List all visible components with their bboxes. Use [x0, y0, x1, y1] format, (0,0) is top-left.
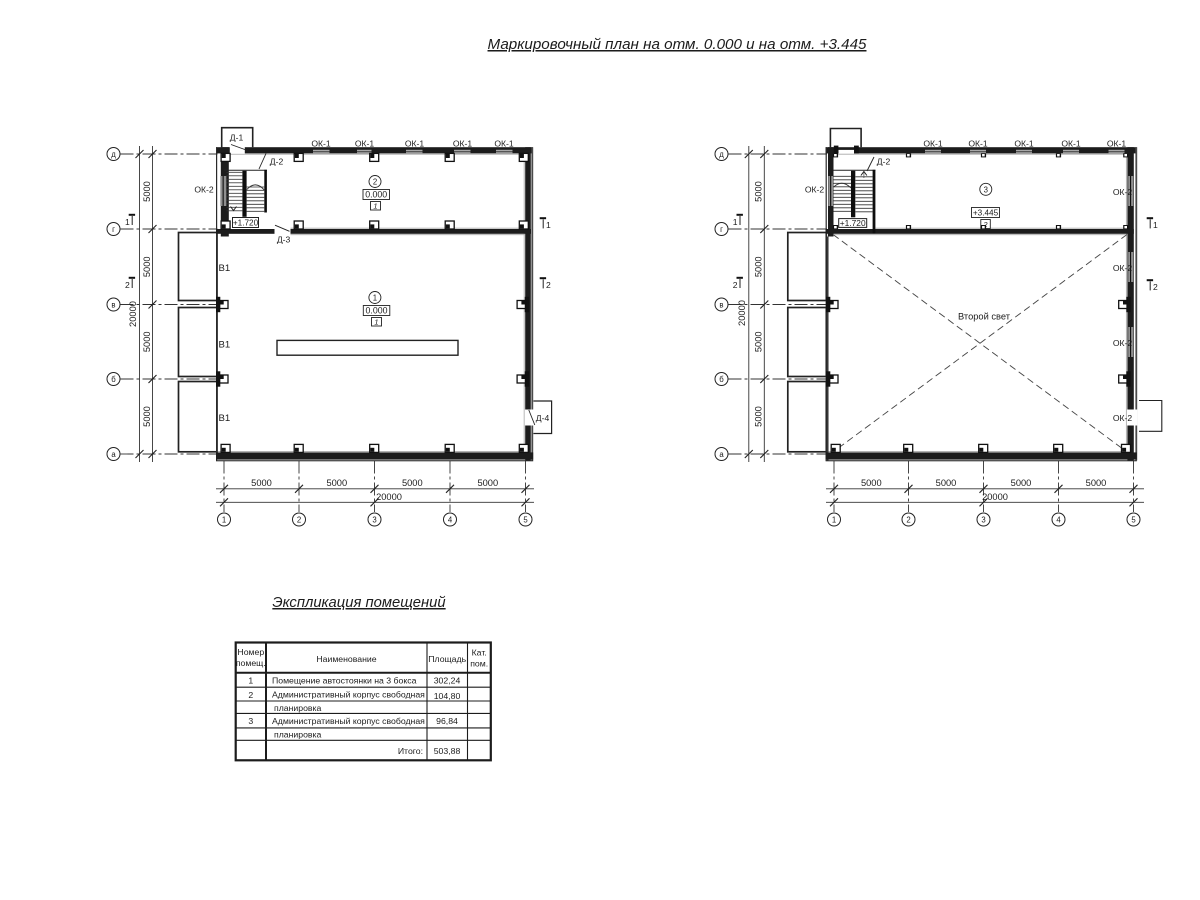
svg-text:ОК-1: ОК-1	[1107, 139, 1127, 149]
svg-text:помещ.: помещ.	[236, 658, 266, 668]
svg-text:0.000: 0.000	[365, 306, 387, 316]
svg-text:20000: 20000	[128, 301, 138, 327]
svg-text:В1: В1	[219, 340, 231, 351]
svg-text:ОК-2: ОК-2	[1113, 413, 1133, 423]
svg-text:а: а	[111, 450, 116, 459]
svg-text:5000: 5000	[402, 478, 423, 488]
svg-text:2: 2	[733, 280, 738, 290]
svg-text:20000: 20000	[376, 492, 402, 502]
svg-text:Административный корпус свобод: Административный корпус свободная	[272, 690, 425, 700]
svg-text:96,84: 96,84	[436, 716, 458, 726]
svg-text:5000: 5000	[142, 181, 152, 202]
svg-text:20000: 20000	[982, 492, 1008, 502]
svg-text:Итого:: Итого:	[398, 746, 423, 756]
svg-text:Кат.: Кат.	[472, 648, 487, 658]
svg-text:+1.720: +1.720	[840, 218, 866, 228]
svg-text:В1: В1	[219, 263, 231, 274]
svg-text:д: д	[719, 150, 724, 159]
svg-text:2: 2	[297, 516, 301, 525]
svg-text:Экспликация помещений: Экспликация помещений	[272, 595, 445, 611]
svg-text:2: 2	[248, 690, 253, 700]
svg-text:3: 3	[372, 516, 376, 525]
svg-text:г: г	[112, 225, 115, 234]
svg-text:ОК-1: ОК-1	[311, 139, 331, 149]
svg-text:5000: 5000	[251, 478, 272, 488]
svg-text:1: 1	[248, 676, 253, 686]
svg-text:ОК-1: ОК-1	[968, 139, 988, 149]
svg-text:Д-2: Д-2	[877, 157, 891, 167]
svg-text:1: 1	[733, 217, 738, 227]
svg-text:Д-2: Д-2	[270, 157, 284, 167]
svg-text:5: 5	[1131, 516, 1136, 525]
svg-text:4: 4	[1056, 516, 1061, 525]
svg-text:Административный корпус свобод: Административный корпус свободная	[272, 716, 425, 726]
svg-text:г: г	[720, 225, 723, 234]
svg-text:В1: В1	[219, 413, 231, 424]
svg-text:5000: 5000	[754, 181, 764, 202]
svg-text:3: 3	[248, 716, 253, 726]
svg-text:20000: 20000	[737, 300, 747, 326]
svg-text:Д-4: Д-4	[536, 413, 550, 423]
svg-text:ОК-1: ОК-1	[355, 139, 375, 149]
svg-text:Помещение автостоянки на 3 бок: Помещение автостоянки на 3 бокса	[272, 676, 417, 686]
svg-text:б: б	[719, 375, 724, 384]
svg-text:1: 1	[1153, 220, 1158, 230]
svg-text:ОК-1: ОК-1	[405, 139, 425, 149]
svg-text:5000: 5000	[477, 478, 498, 488]
svg-text:5000: 5000	[326, 478, 347, 488]
svg-text:5000: 5000	[1011, 478, 1032, 488]
svg-text:2: 2	[125, 280, 130, 290]
svg-text:5000: 5000	[142, 256, 152, 277]
svg-text:1: 1	[546, 220, 551, 230]
svg-text:104,80: 104,80	[434, 691, 461, 701]
svg-text:Второй свет: Второй свет	[958, 312, 1011, 322]
svg-text:+1.720: +1.720	[233, 218, 259, 227]
svg-text:2: 2	[906, 516, 910, 525]
svg-text:5000: 5000	[754, 331, 764, 352]
svg-text:ОК-1: ОК-1	[1014, 139, 1034, 149]
svg-text:3: 3	[984, 185, 988, 194]
svg-text:Наименование: Наименование	[316, 654, 376, 664]
svg-text:Д-3: Д-3	[277, 235, 291, 245]
svg-text:ОК-2: ОК-2	[1113, 263, 1133, 273]
svg-text:0.000: 0.000	[365, 190, 387, 200]
svg-text:ОК-2: ОК-2	[194, 184, 214, 194]
svg-text:5000: 5000	[142, 331, 152, 352]
svg-text:а: а	[719, 450, 724, 459]
svg-text:ОК-1: ОК-1	[923, 139, 943, 149]
svg-text:5000: 5000	[936, 478, 957, 488]
svg-text:1: 1	[125, 217, 130, 227]
svg-text:б: б	[111, 375, 116, 384]
svg-text:ОК-1: ОК-1	[1061, 139, 1081, 149]
svg-text:5: 5	[523, 516, 528, 525]
svg-text:+3.445: +3.445	[973, 209, 999, 218]
svg-text:2: 2	[1153, 282, 1158, 292]
svg-text:1: 1	[373, 294, 377, 303]
svg-text:ОК-1: ОК-1	[453, 139, 473, 149]
svg-text:5000: 5000	[754, 406, 764, 427]
svg-text:Маркировочный план на отм. 0.0: Маркировочный план на отм. 0.000 и на от…	[488, 36, 868, 53]
svg-text:503,88: 503,88	[434, 746, 461, 756]
svg-text:ОК-2: ОК-2	[1113, 187, 1133, 197]
svg-text:5000: 5000	[754, 256, 764, 277]
svg-text:планировка: планировка	[274, 729, 322, 739]
svg-text:Номер: Номер	[237, 647, 264, 657]
svg-text:ОК-2: ОК-2	[1113, 338, 1133, 348]
svg-text:планировка: планировка	[274, 703, 322, 713]
svg-text:д: д	[111, 150, 116, 159]
svg-text:1: 1	[373, 202, 377, 211]
svg-text:в: в	[111, 301, 115, 310]
svg-text:Площадь: Площадь	[428, 654, 466, 664]
svg-text:Д-1: Д-1	[230, 133, 244, 143]
svg-text:5000: 5000	[861, 478, 882, 488]
svg-text:2: 2	[373, 178, 377, 187]
svg-text:пом.: пом.	[470, 659, 488, 669]
svg-text:1: 1	[222, 516, 226, 525]
svg-text:2: 2	[546, 280, 551, 290]
svg-text:5000: 5000	[1086, 478, 1107, 488]
svg-text:302,24: 302,24	[434, 676, 461, 686]
svg-text:1: 1	[374, 318, 378, 327]
svg-text:ОК-1: ОК-1	[494, 139, 514, 149]
svg-text:ОК-2: ОК-2	[805, 184, 825, 194]
svg-text:1: 1	[832, 516, 836, 525]
svg-text:5000: 5000	[142, 406, 152, 427]
svg-text:3: 3	[981, 516, 985, 525]
svg-text:4: 4	[448, 516, 453, 525]
svg-text:в: в	[719, 301, 723, 310]
